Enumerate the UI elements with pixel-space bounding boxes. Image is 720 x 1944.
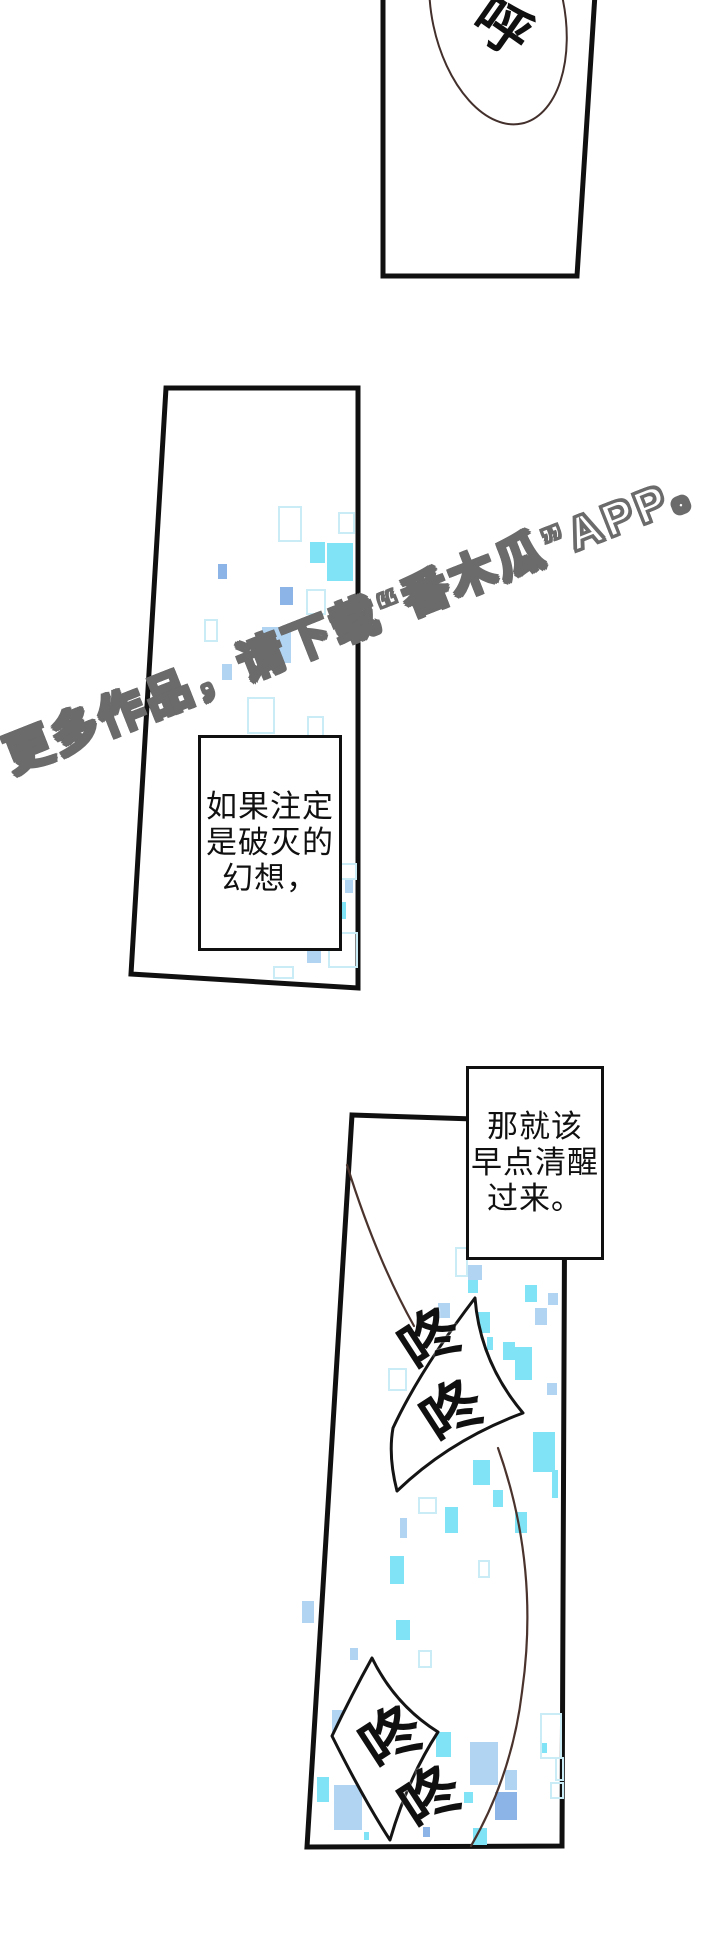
watermark-text: 更多作品，请下载“番木瓜”APP。	[0, 446, 720, 786]
comic-page: 呼 咚 咚 咚 咚 如果注定 是破灭的 幻想， 那就该 早点清醒 过来。 更多作…	[0, 0, 720, 1944]
watermark-layer: 更多作品，请下载“番木瓜”APP。	[0, 0, 720, 1944]
